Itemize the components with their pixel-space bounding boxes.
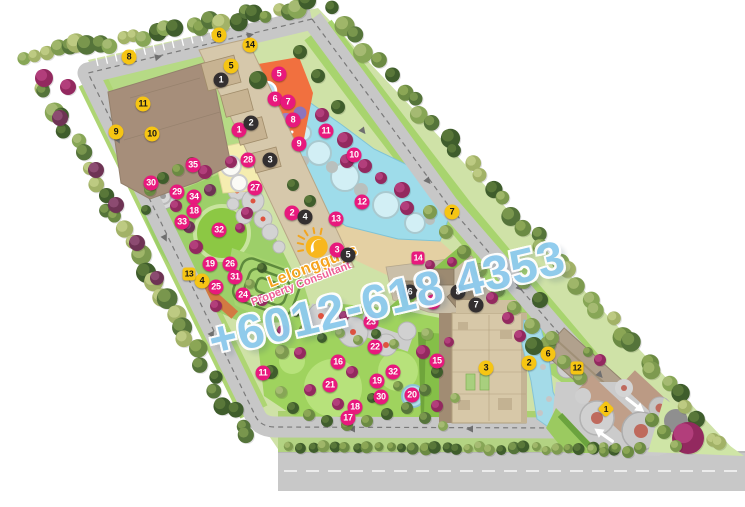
marker-pink-circle-29: 29 (170, 185, 185, 200)
marker-pink-circle-20: 20 (405, 388, 420, 403)
marker-pink-circle-18: 18 (187, 204, 202, 219)
marker-yellow-circle-14: 14 (243, 38, 258, 53)
marker-pink-circle-32: 32 (386, 365, 401, 380)
marker-pink-circle-27: 27 (248, 181, 263, 196)
marker-pink-circle-11: 11 (256, 366, 271, 381)
marker-pink-circle-17: 17 (341, 411, 356, 426)
marker-pink-circle-32: 32 (212, 223, 227, 238)
marker-pink-circle-21: 21 (323, 378, 338, 393)
marker-yellow-circle-6: 6 (212, 28, 227, 43)
marker-pink-circle-12: 12 (355, 195, 370, 210)
marker-pink-circle-13: 13 (329, 212, 344, 227)
marker-pink-circle-7: 7 (281, 95, 296, 110)
marker-pink-circle-11: 11 (319, 124, 334, 139)
marker-pink-circle-9: 9 (292, 137, 307, 152)
marker-yellow-circle-10: 10 (145, 127, 160, 142)
marker-pink-circle-19: 19 (370, 374, 385, 389)
marker-pink-circle-28: 28 (241, 153, 256, 168)
marker-yellow-circle-3: 3 (479, 361, 494, 376)
marker-pink-circle-30: 30 (144, 176, 159, 191)
marker-black-circle-2: 2 (244, 116, 259, 131)
marker-yellow-circle-7: 7 (445, 205, 460, 220)
marker-black-circle-4: 4 (298, 210, 313, 225)
marker-pink-circle-16: 16 (331, 355, 346, 370)
marker-pink-circle-34: 34 (187, 190, 202, 205)
public-road-bottom (278, 451, 745, 491)
marker-yellow-circle-11: 11 (136, 97, 151, 112)
site-plan-page: Lelongguys Property Consultant 567811191… (0, 0, 745, 507)
marker-yellow-circle-4: 4 (195, 274, 210, 289)
marker-black-circle-3: 3 (263, 153, 278, 168)
marker-black-circle-5: 5 (341, 248, 356, 263)
marker-black-circle-1: 1 (214, 73, 229, 88)
marker-pink-circle-33: 33 (175, 215, 190, 230)
marker-yellow-circle-5: 5 (224, 59, 239, 74)
marker-pink-circle-8: 8 (286, 113, 301, 128)
marker-pink-circle-19: 19 (203, 257, 218, 272)
marker-yellow-square-13: 13 (183, 268, 196, 281)
marker-yellow-circle-6: 6 (541, 347, 556, 362)
marker-yellow-square-12: 12 (571, 362, 584, 375)
marker-pink-circle-22: 22 (368, 340, 383, 355)
marker-pink-circle-30: 30 (374, 390, 389, 405)
marker-pink-circle-15: 15 (430, 354, 445, 369)
marker-pink-circle-5: 5 (272, 67, 287, 82)
marker-pink-circle-10: 10 (347, 148, 362, 163)
marker-pink-circle-31: 31 (228, 270, 243, 285)
marker-yellow-circle-9: 9 (109, 125, 124, 140)
marker-yellow-circle-8: 8 (122, 50, 137, 65)
marker-pink-circle-25: 25 (209, 280, 224, 295)
marker-pink-circle-35: 35 (186, 158, 201, 173)
marker-pink-circle-24: 24 (236, 288, 251, 303)
marker-yellow-circle-2: 2 (522, 356, 537, 371)
